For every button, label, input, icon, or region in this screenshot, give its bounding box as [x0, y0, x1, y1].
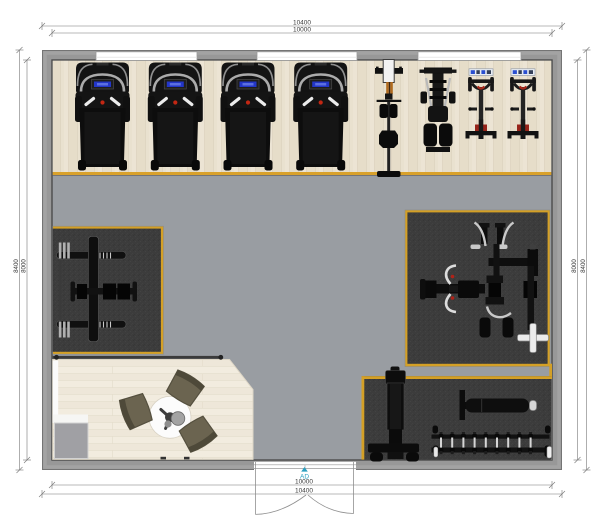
- svg-text:8400: 8400: [13, 259, 20, 273]
- svg-text:10000: 10000: [293, 27, 311, 34]
- svg-text:8000: 8000: [21, 259, 28, 273]
- svg-text:AD: AD: [300, 474, 309, 481]
- svg-text:10400: 10400: [293, 20, 311, 27]
- svg-text:8400: 8400: [580, 259, 587, 273]
- svg-text:10400: 10400: [295, 488, 313, 495]
- svg-text:8000: 8000: [571, 259, 578, 273]
